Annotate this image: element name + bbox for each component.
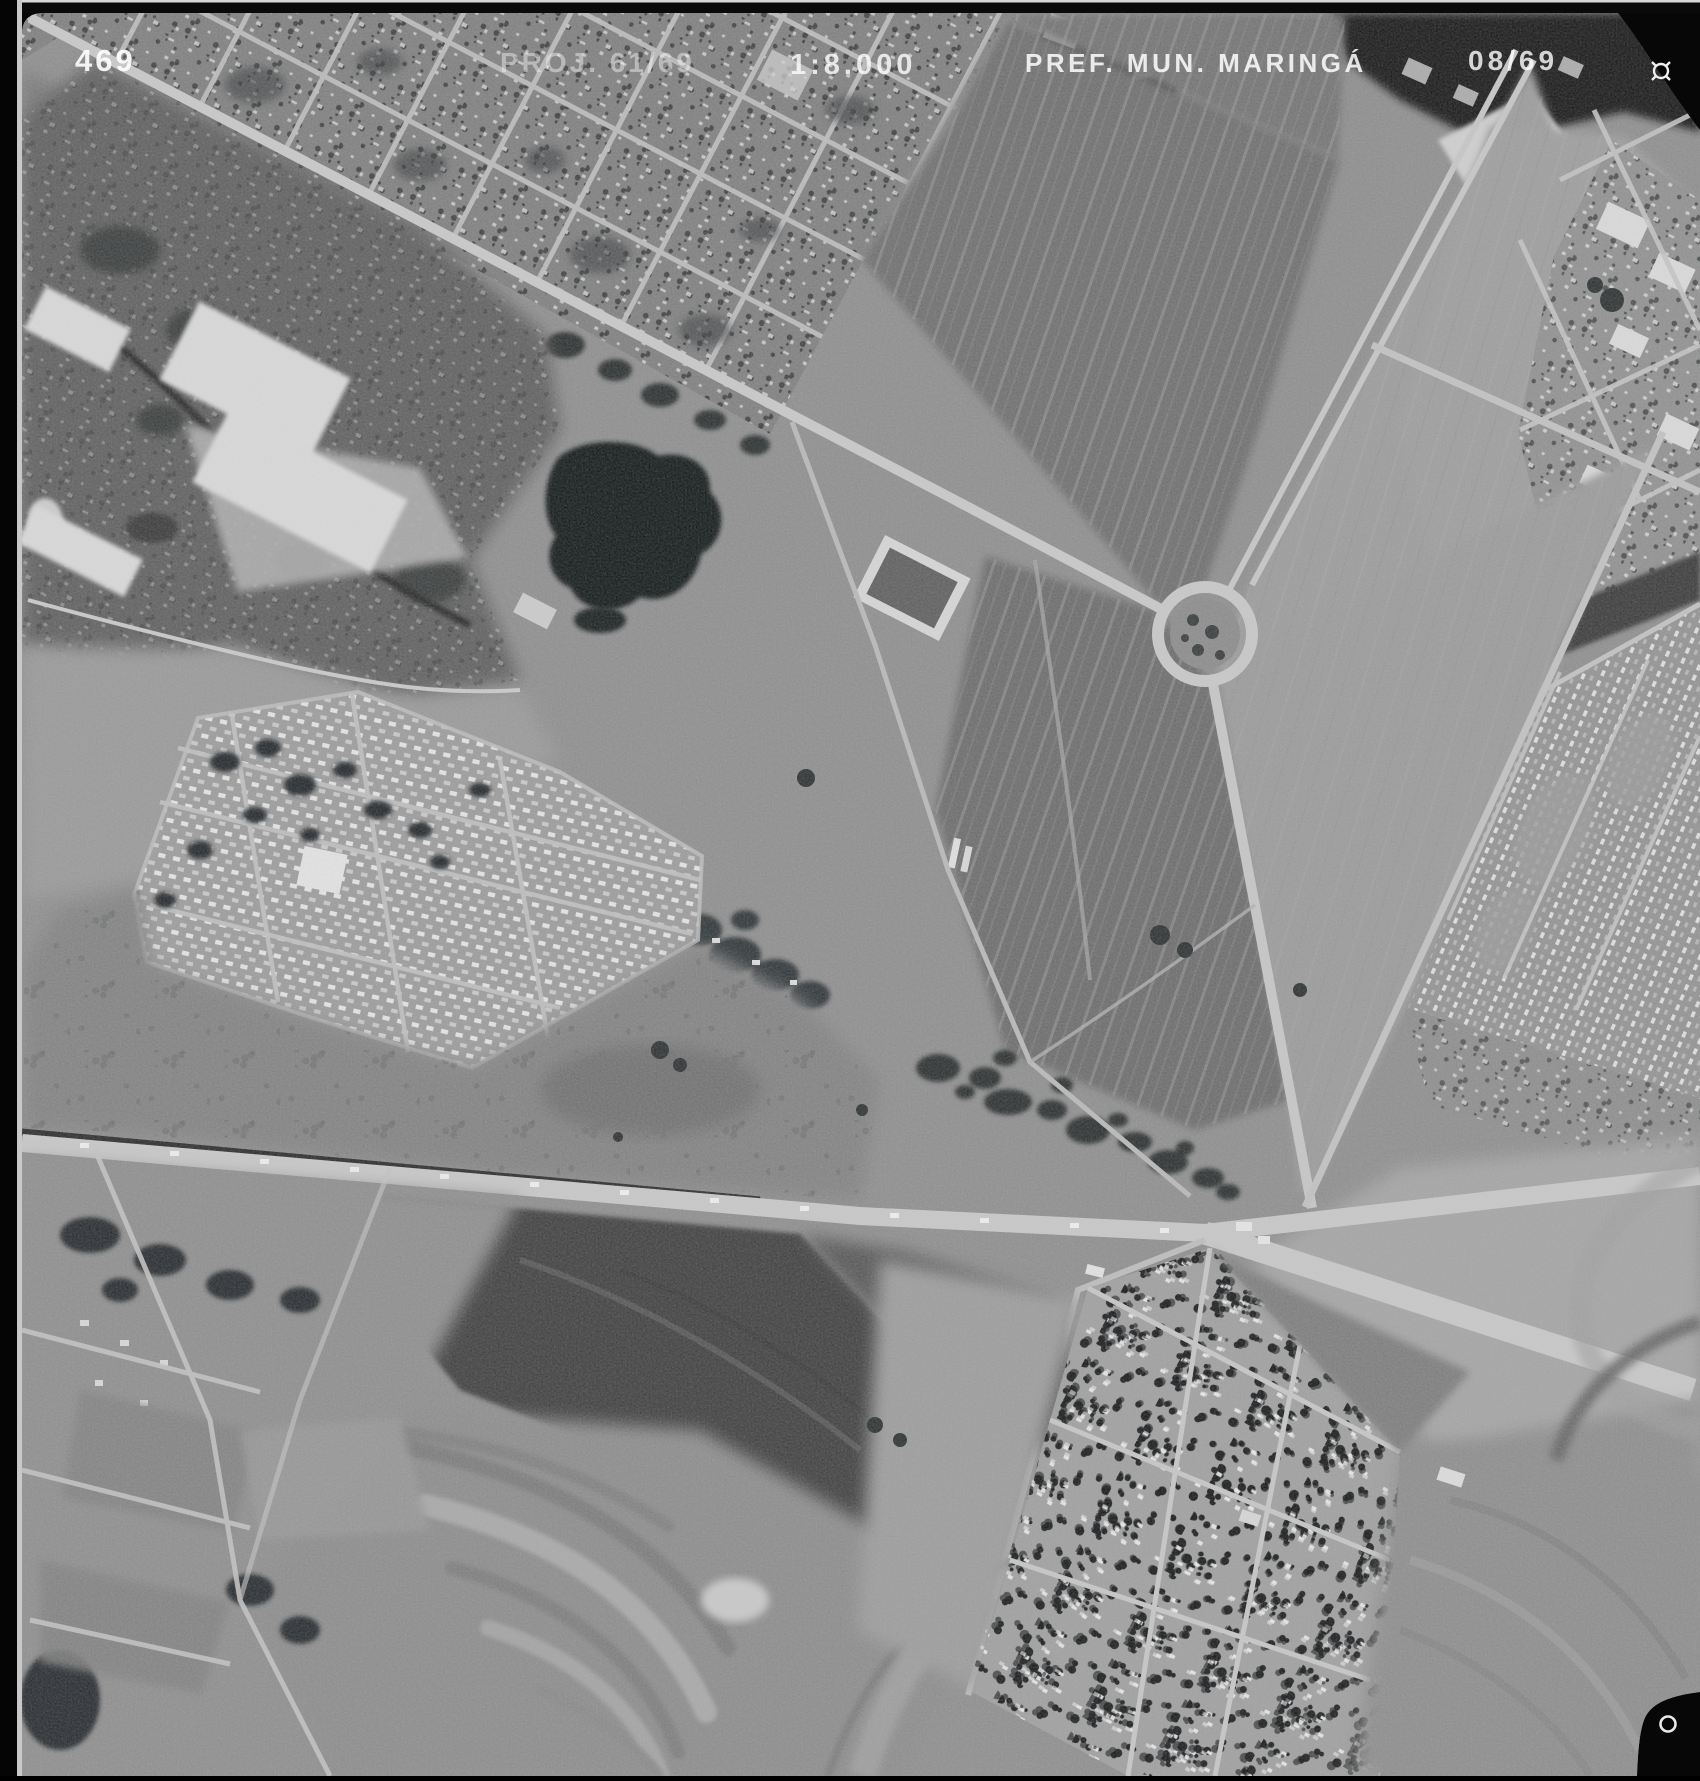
svg-text:1:8.000: 1:8.000 bbox=[790, 49, 916, 81]
svg-text:08/69: 08/69 bbox=[1468, 45, 1558, 76]
svg-text:PREF. MUN. MARINGÁ: PREF. MUN. MARINGÁ bbox=[1025, 48, 1367, 78]
svg-text:PROJ. 61/69: PROJ. 61/69 bbox=[500, 47, 695, 78]
svg-text:469: 469 bbox=[75, 43, 136, 78]
